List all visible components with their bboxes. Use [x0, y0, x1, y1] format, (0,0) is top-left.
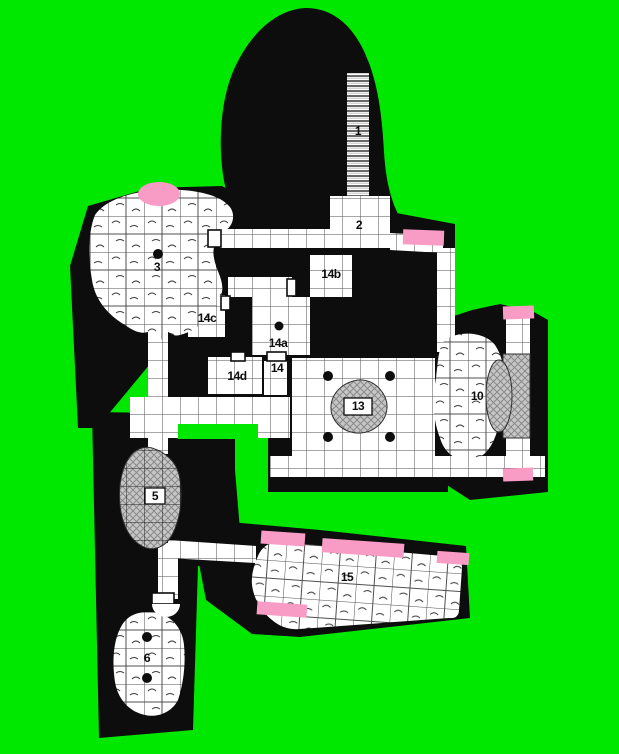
pillar-dot: [323, 432, 333, 442]
door: [221, 296, 230, 310]
door-highlight-marker: [403, 229, 444, 245]
door: [208, 230, 221, 247]
pillar-dot: [153, 249, 163, 259]
room-label-15: 15: [341, 571, 353, 583]
corridor-above-14a: [228, 277, 292, 297]
corridor-2-west: [220, 229, 330, 248]
room-label-14: 14: [271, 362, 283, 374]
room-label-1: 1: [355, 125, 361, 137]
pillar-dot: [385, 432, 395, 442]
door: [267, 352, 286, 361]
door: [231, 352, 245, 361]
room-label-6: 6: [144, 652, 150, 664]
room-label-14c: 14c: [198, 312, 217, 324]
door-highlight-marker: [503, 467, 533, 481]
room-label-3: 3: [154, 261, 160, 273]
door-highlight-marker: [138, 182, 180, 206]
door: [287, 279, 296, 296]
map-canvas: 1 2 3 5 6 10 13 14 14a 14b 14c 14d 15: [0, 0, 619, 754]
room-10-rubble: [486, 360, 512, 432]
room-label-2: 2: [356, 219, 362, 231]
room-label-10: 10: [471, 390, 483, 402]
room-label-5: 5: [152, 490, 158, 502]
pillar-dot: [275, 322, 284, 331]
pillar-dot: [385, 371, 395, 381]
door: [152, 593, 174, 604]
room-label-14a: 14a: [269, 337, 288, 349]
pillar-dot: [142, 673, 152, 683]
door-highlight-marker: [503, 305, 534, 319]
room-label-13: 13: [352, 400, 364, 412]
pillar-dot: [323, 371, 333, 381]
green-mask-patch: [178, 424, 258, 439]
pillar-dot: [142, 632, 152, 642]
room-label-14d: 14d: [227, 370, 246, 382]
room-label-14b: 14b: [321, 268, 340, 280]
door-highlight-marker: [437, 551, 470, 565]
dungeon-map: [0, 0, 619, 754]
room-15-cave-floor: [252, 542, 462, 629]
